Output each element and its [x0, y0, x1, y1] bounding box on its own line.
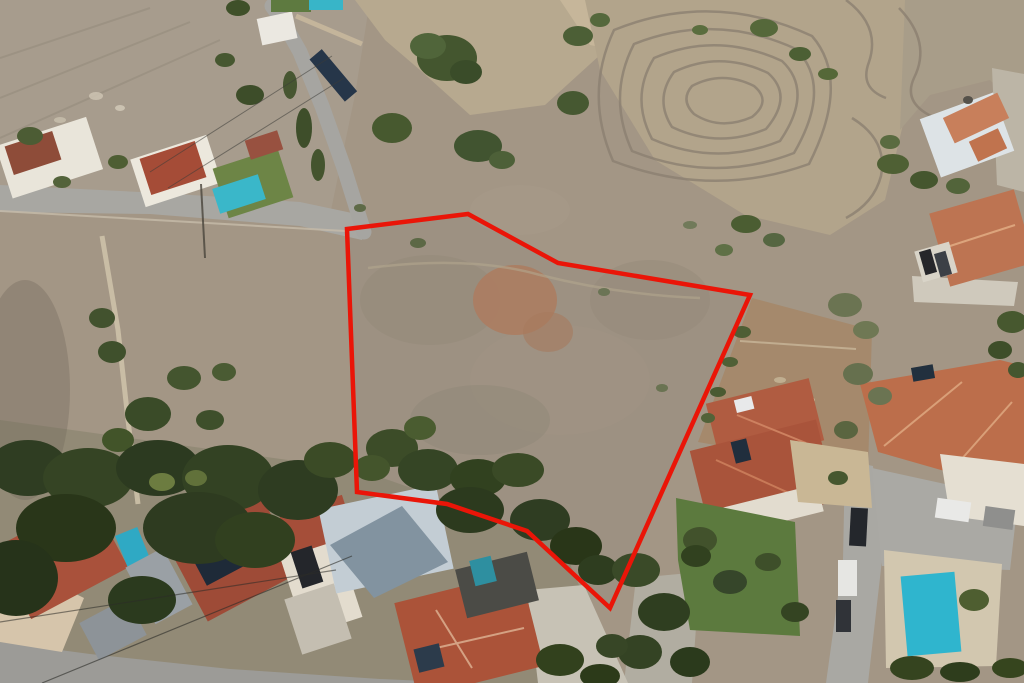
hedge	[311, 149, 325, 181]
shrub	[880, 135, 900, 149]
rubble-2	[115, 105, 125, 111]
van-white-street	[838, 560, 857, 596]
tree	[212, 363, 236, 381]
pool-bottom-right	[901, 572, 962, 656]
tree	[398, 449, 458, 491]
bush	[598, 288, 610, 296]
tree	[489, 151, 515, 169]
lawn-tree	[755, 553, 781, 571]
top-pool	[309, 0, 343, 10]
rubble-3	[54, 117, 66, 123]
hedge	[722, 357, 738, 367]
forest	[215, 512, 295, 568]
tree	[108, 155, 128, 169]
tree	[590, 13, 610, 27]
tree	[17, 127, 43, 145]
top-lawn	[271, 0, 311, 12]
hedge	[296, 108, 312, 148]
tree	[125, 397, 171, 431]
tree	[215, 53, 235, 67]
tree	[492, 453, 544, 487]
plot-mottle-4	[470, 185, 570, 235]
tree	[53, 176, 71, 188]
lawn-tree	[681, 545, 711, 567]
field-bush	[715, 244, 733, 256]
tree	[638, 593, 690, 631]
tree	[557, 91, 589, 115]
corner-bush	[890, 656, 934, 680]
rubble-1	[89, 92, 103, 100]
lawn-tree	[713, 570, 747, 594]
tr1-roof-equipment	[963, 96, 973, 104]
car-dark-street-2	[836, 600, 851, 632]
palm-tree	[959, 589, 989, 611]
hedge	[283, 71, 297, 99]
tree	[98, 341, 126, 363]
tree	[196, 410, 224, 430]
tree	[404, 416, 436, 440]
tree	[563, 26, 593, 46]
field-bush	[750, 19, 778, 37]
tree	[354, 455, 390, 481]
bush	[354, 204, 366, 212]
car-dark-street	[849, 508, 868, 547]
field-bush	[763, 233, 785, 247]
hedge	[701, 413, 715, 423]
tree	[450, 60, 482, 84]
shrub	[877, 154, 909, 174]
olive-tree	[828, 293, 862, 317]
corner-bush	[940, 662, 980, 682]
bush	[683, 221, 697, 229]
shrub	[910, 171, 938, 189]
aerial-photo-figure	[0, 0, 1024, 683]
forest	[304, 442, 356, 478]
tree	[410, 33, 446, 59]
tree	[596, 634, 628, 658]
palm-tree	[149, 473, 175, 491]
tree	[89, 308, 115, 328]
bush	[410, 238, 426, 248]
olive-tree	[868, 387, 892, 405]
tree	[226, 0, 250, 16]
shrub	[946, 178, 970, 194]
red-soil-patch-2	[523, 312, 573, 352]
bush	[656, 384, 668, 392]
field-bush	[731, 215, 761, 233]
street-hedge	[828, 471, 848, 485]
tree	[612, 553, 660, 587]
shrub	[988, 341, 1012, 359]
palm-tree	[185, 470, 207, 486]
tree	[167, 366, 201, 390]
olive-tree	[843, 363, 873, 385]
tree	[670, 647, 710, 677]
field-bush	[692, 25, 708, 35]
aerial-photo	[0, 0, 1024, 683]
hedge	[710, 387, 726, 397]
olive-tree	[853, 321, 879, 339]
olive-tree	[834, 421, 858, 439]
dark-tree	[536, 644, 584, 676]
field-bush	[818, 68, 838, 80]
lawn-tree	[781, 602, 809, 622]
rock-1	[774, 377, 786, 383]
car-gray-parking	[983, 506, 1015, 530]
field-bush	[789, 47, 811, 61]
tree	[372, 113, 412, 143]
